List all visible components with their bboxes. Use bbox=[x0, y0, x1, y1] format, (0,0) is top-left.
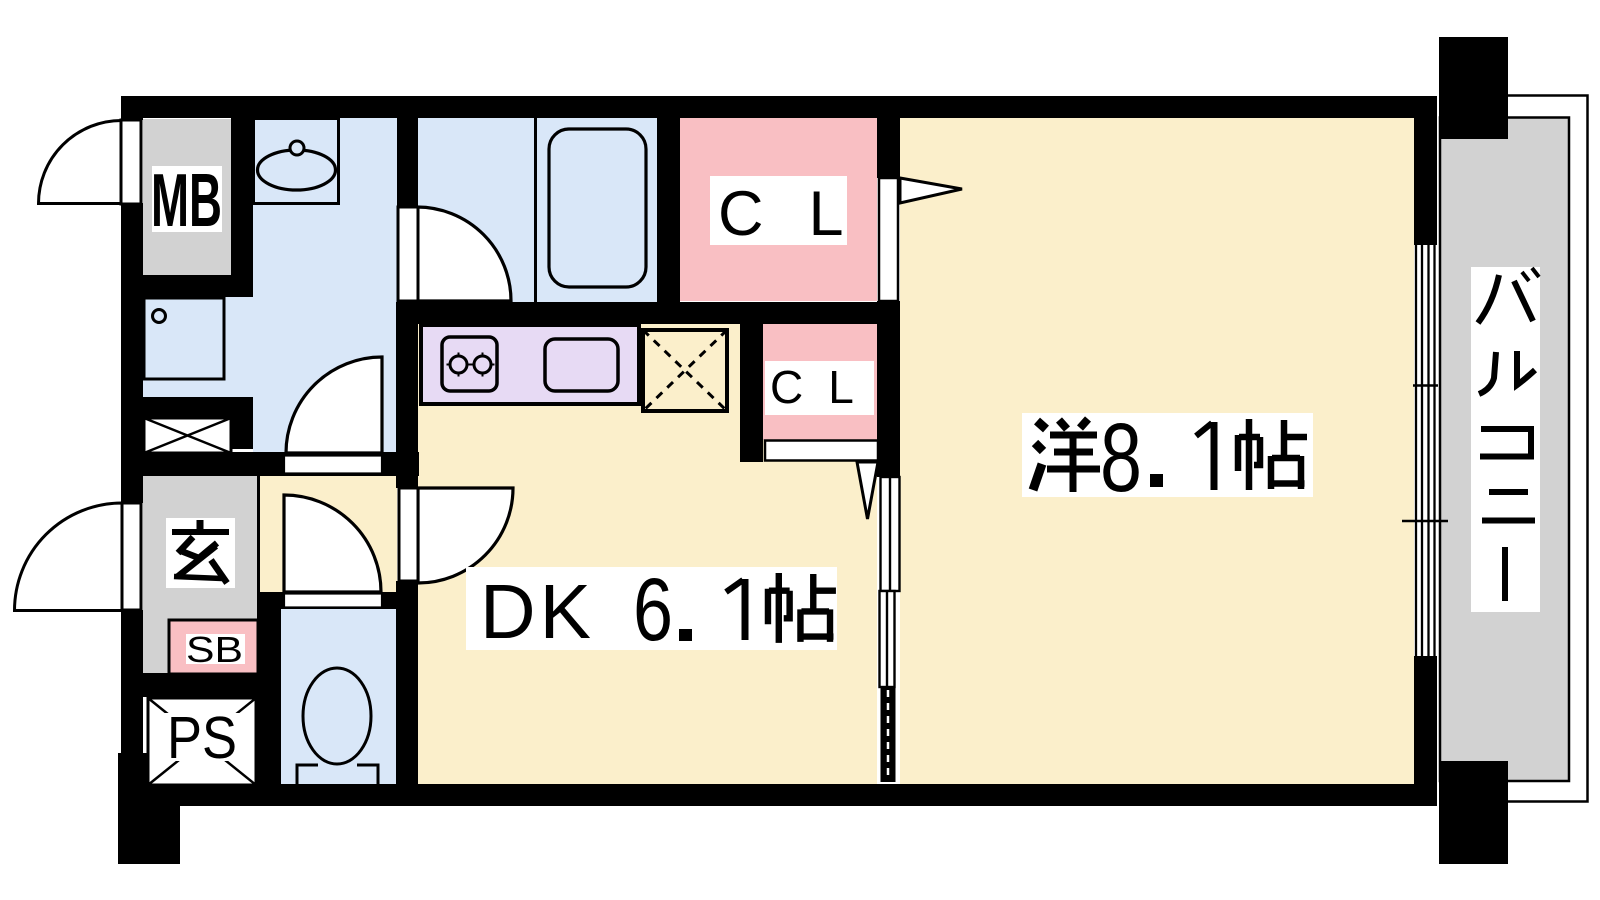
svg-text:SB: SB bbox=[186, 629, 243, 670]
svg-text:6: 6 bbox=[633, 559, 673, 659]
svg-text:CL: CL bbox=[718, 179, 889, 249]
svg-text:CL: CL bbox=[770, 361, 879, 413]
svg-text:8: 8 bbox=[1100, 403, 1142, 512]
svg-text:MB: MB bbox=[151, 158, 222, 242]
svg-text:DK: DK bbox=[480, 569, 595, 655]
svg-text:PS: PS bbox=[167, 705, 237, 771]
